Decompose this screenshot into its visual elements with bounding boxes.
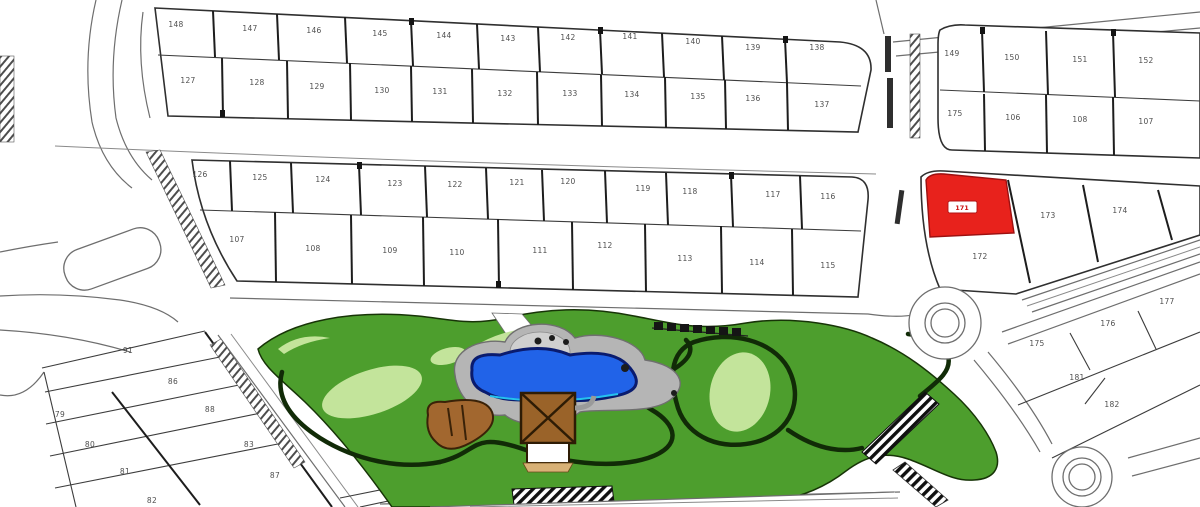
median-bar (895, 190, 905, 224)
curb-hatch (0, 56, 14, 142)
clubhouse-patio (527, 443, 569, 463)
median-bar (887, 78, 893, 128)
lot-number: 149 (944, 49, 959, 58)
lot-number: 137 (814, 100, 829, 109)
lot-number: 133 (562, 89, 577, 98)
lot-number: 139 (745, 43, 760, 52)
lot-number: 175 (947, 109, 962, 118)
lot-number: 134 (624, 90, 639, 99)
traffic-island-west (58, 222, 166, 296)
lot-number: 151 (1072, 55, 1087, 64)
lot-number: 173 (1040, 211, 1055, 220)
lot-number: 172 (972, 252, 987, 261)
clubhouse-steps (523, 463, 573, 472)
lot-block-north (155, 8, 871, 132)
lot-number: 124 (315, 175, 330, 184)
lot-number: 116 (820, 192, 835, 201)
lot-number: 110 (449, 248, 464, 257)
lot-number: 108 (305, 244, 320, 253)
lot-number: 140 (685, 37, 700, 46)
lot-number: 106 (1005, 113, 1020, 122)
lot-number: 107 (1138, 117, 1153, 126)
lot-number: 127 (180, 76, 195, 85)
lot-number: 119 (635, 184, 650, 193)
lot-block-southeast (1002, 262, 1200, 458)
lot-number: 128 (249, 78, 264, 87)
lot-number: 171 (955, 204, 969, 212)
lot-number: 143 (500, 34, 515, 43)
lot-number: 129 (309, 82, 324, 91)
lot-number: 108 (1072, 115, 1087, 124)
lot-number: 176 (1100, 319, 1115, 328)
lot-number: 115 (820, 261, 835, 270)
roundabout-north (909, 287, 981, 359)
lot-number: 132 (497, 89, 512, 98)
lot-number: 182 (1104, 400, 1119, 409)
lot-number: 82 (147, 496, 157, 505)
lot-number: 118 (682, 187, 697, 196)
roundabout-south (1052, 447, 1112, 507)
lot-block-northeast (938, 25, 1200, 158)
lot-number: 117 (765, 190, 780, 199)
lot-number: 138 (809, 43, 824, 52)
median-bar (885, 36, 891, 72)
lot-number: 109 (382, 246, 397, 255)
site-plan-map: 171 (0, 0, 1200, 507)
lot-number: 145 (372, 29, 387, 38)
lot-block-mid (192, 160, 868, 297)
lot-number: 147 (242, 24, 257, 33)
lot-number: 81 (120, 467, 130, 476)
lot-number: 144 (436, 31, 451, 40)
lot-number: 136 (745, 94, 760, 103)
lot-number: 107 (229, 235, 244, 244)
lot-number: 141 (622, 32, 637, 41)
lot-number: 174 (1112, 206, 1127, 215)
lot-block-east: 171 (921, 171, 1200, 294)
lot-number: 79 (55, 410, 65, 419)
lot-number: 126 (192, 170, 207, 179)
lot-number: 125 (252, 173, 267, 182)
lot-number: 121 (509, 178, 524, 187)
lot-number: 122 (447, 180, 462, 189)
amenity-park (258, 310, 998, 507)
lot-number: 123 (387, 179, 402, 188)
lot-number: 175 (1029, 339, 1044, 348)
lot-number: 135 (690, 92, 705, 101)
lot-number: 131 (432, 87, 447, 96)
lot-number: 177 (1159, 297, 1174, 306)
lot-number: 86 (168, 377, 178, 386)
lot-number: 80 (85, 440, 95, 449)
lot-number: 150 (1004, 53, 1019, 62)
highlighted-lot-label: 171 (948, 201, 977, 213)
lot-number: 148 (168, 20, 183, 29)
lot-number: 83 (244, 440, 254, 449)
lot-number: 91 (123, 346, 133, 355)
lot-number: 146 (306, 26, 321, 35)
lot-number: 113 (677, 254, 692, 263)
lot-number: 88 (205, 405, 215, 414)
lot-number: 114 (749, 258, 764, 267)
median-hatch (910, 34, 920, 138)
lot-number: 120 (560, 177, 575, 186)
lot-number: 87 (270, 471, 280, 480)
lot-number: 181 (1069, 373, 1084, 382)
lot-number: 152 (1138, 56, 1153, 65)
lot-number: 111 (532, 246, 547, 255)
lot-number: 142 (560, 33, 575, 42)
lot-number: 130 (374, 86, 389, 95)
lot-number: 112 (597, 241, 612, 250)
